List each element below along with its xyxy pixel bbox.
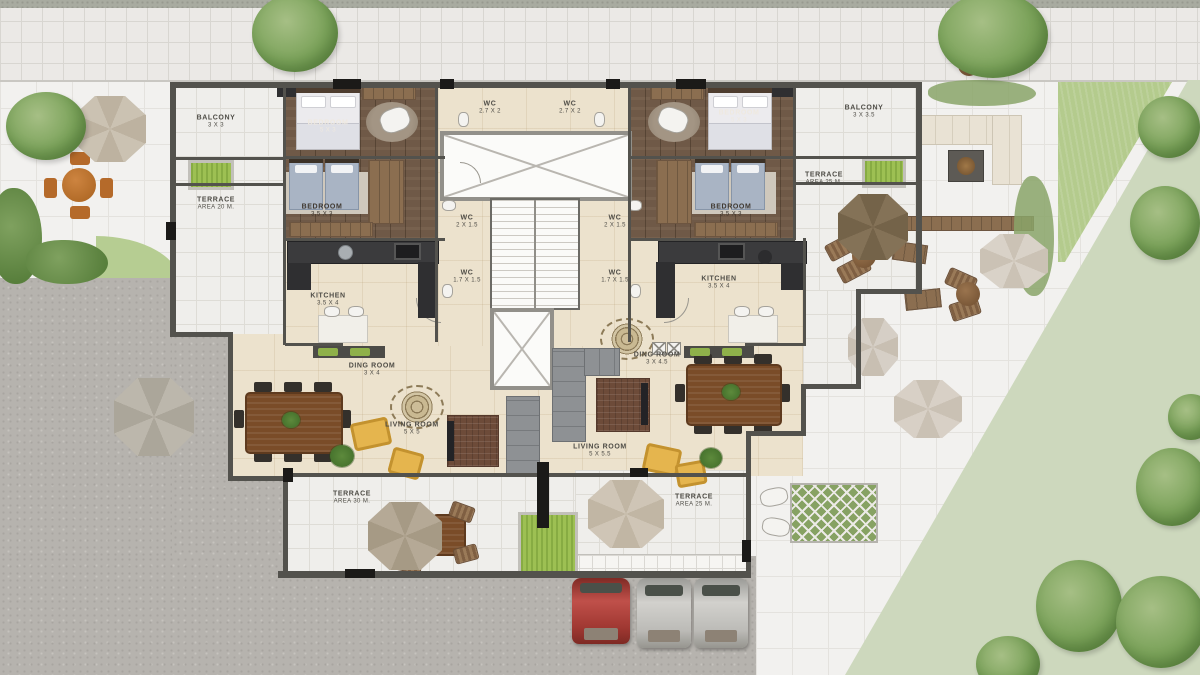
room-name: KITCHEN: [310, 292, 345, 301]
room-name: WC: [559, 100, 581, 109]
umbrella: [894, 380, 962, 438]
chair: [348, 306, 364, 317]
room-size: 3 X 4.5: [634, 360, 681, 367]
building-wall: [801, 384, 806, 436]
dresser: [289, 222, 373, 237]
accent-wall: [537, 462, 549, 528]
outdoor-sofa-corner: [992, 115, 1022, 185]
tree: [1116, 576, 1200, 668]
potted-plant: [700, 448, 722, 468]
room-label-wc-top-left: WC2.7 X 2: [479, 100, 501, 117]
building-wall: [283, 476, 288, 576]
wardrobe: [656, 160, 692, 224]
sofa-corner-section: [584, 348, 620, 376]
room-name: BEDROOM: [308, 119, 349, 128]
partition-wall: [793, 84, 796, 240]
chair: [734, 306, 750, 317]
partition-wall: [285, 343, 343, 346]
chair: [44, 178, 57, 198]
room-name: TERRACE: [333, 490, 371, 499]
partition-wall: [285, 156, 445, 159]
room-label-kitchen-right: KITCHEN3.5 X 4: [701, 275, 736, 292]
room-name: WC: [601, 269, 629, 278]
room-label-balcony-right: BALCONY3 X 3.5: [845, 104, 884, 121]
lounge-chair: [761, 516, 792, 539]
building-wall: [170, 82, 176, 337]
wardrobe: [368, 160, 404, 224]
sink-icon: [442, 200, 456, 211]
sofa-right-apartment: [552, 348, 586, 442]
car-silver: [637, 578, 691, 648]
room-size: AREA 30 M.: [333, 499, 371, 506]
chair: [100, 178, 113, 198]
room-name: TERRACE: [675, 493, 713, 502]
stove-icon: [394, 243, 421, 260]
room-name: BALCONY: [197, 114, 236, 123]
building-wall: [228, 476, 288, 481]
tv-console: [447, 421, 454, 461]
stove-icon: [718, 243, 745, 260]
room-label-bedroom-right-master: BEDROOM5 X 3: [719, 109, 760, 126]
car-silver: [694, 578, 748, 648]
building-wall: [801, 384, 861, 389]
room-size: 1.7 X 1.5: [601, 278, 629, 285]
room-name: TERRACE: [805, 171, 843, 180]
toilet-icon: [630, 284, 641, 298]
kitchen-table: [728, 315, 778, 343]
partition-wall: [630, 156, 795, 159]
room-size: 2.7 X 2: [479, 109, 501, 116]
wall-pier: [333, 79, 361, 89]
fridge: [781, 263, 805, 290]
room-size: 5 X 5.5: [573, 452, 627, 459]
dresser: [694, 222, 778, 237]
room-size: 5 X 5: [385, 430, 439, 437]
room-size: AREA 25 M.: [805, 180, 843, 187]
rail-plant: [722, 348, 742, 356]
wall-pier: [676, 79, 706, 89]
dining-chair: [234, 410, 244, 428]
partition-wall: [283, 84, 286, 345]
kitchen-table: [318, 315, 368, 343]
tree: [6, 92, 86, 160]
pot-icon: [758, 250, 772, 264]
partition-wall: [795, 156, 920, 159]
rail-plant: [350, 348, 370, 356]
room-name: LIVING ROOM: [573, 443, 627, 452]
toilet-icon: [458, 112, 469, 127]
wood-deck-strip: [890, 216, 1034, 231]
room-size: 2.7 X 2: [559, 109, 581, 116]
chair: [70, 206, 90, 219]
room-name: LIVING ROOM: [385, 421, 439, 430]
elevator-x-icon: [494, 312, 550, 386]
umbrella: [368, 502, 442, 570]
rail-plant: [318, 348, 338, 356]
room-label-dining-right: DING ROOM3 X 4.5: [634, 351, 681, 368]
building-wall: [746, 431, 806, 436]
wall-pier: [742, 540, 751, 562]
room-name: BEDROOM: [711, 203, 752, 212]
room-label-dining-left: DING ROOM3 X 4: [349, 362, 396, 379]
room-size: 3.5 X 4: [310, 301, 345, 308]
floor-plan-canvas: BALCONY3 X 3 TERRACEAREA 20 M. BEDROOM5 …: [0, 0, 1200, 675]
room-name: WC: [479, 100, 501, 109]
room-size: 2 X 1.5: [456, 223, 478, 230]
lounge-chair: [758, 485, 789, 508]
room-label-wc-low-left: WC1.7 X 1.5: [453, 269, 481, 286]
room-label-wc-top-right: WC2.7 X 2: [559, 100, 581, 117]
tree: [1138, 96, 1200, 158]
room-name: BEDROOM: [302, 203, 343, 212]
umbrella: [588, 480, 664, 548]
room-label-kitchen-left: KITCHEN3.5 X 4: [310, 292, 345, 309]
partition-wall: [630, 238, 795, 241]
stair-divider: [534, 200, 536, 308]
room-name: WC: [453, 269, 481, 278]
room-size: 5 X 3: [308, 128, 349, 135]
partition-wall: [745, 343, 803, 346]
dining-chair: [754, 354, 772, 364]
room-name: WC: [456, 214, 478, 223]
partition-wall: [628, 84, 631, 342]
tv-rug: [447, 415, 499, 467]
building-wall: [856, 289, 922, 294]
room-name: DING ROOM: [349, 362, 396, 371]
wall-pier: [606, 79, 620, 89]
dining-chair: [314, 382, 332, 392]
toilet-icon: [594, 112, 605, 127]
room-label-bedroom-left-kids: BEDROOM3.5 X 3: [302, 203, 343, 220]
room-label-living-right: LIVING ROOM5 X 5.5: [573, 443, 627, 460]
room-size: 5 X 3: [719, 118, 760, 125]
dining-chair: [675, 384, 685, 402]
wall-pier: [283, 468, 293, 482]
building-wall: [916, 82, 922, 294]
room-label-bedroom-right-kids: BEDROOM3.5 X 3: [711, 203, 752, 220]
partition-wall: [285, 473, 748, 477]
room-label-balcony-left: BALCONY3 X 3: [197, 114, 236, 131]
room-size: 3.5 X 3: [711, 212, 752, 219]
round-table-orange: [62, 168, 96, 202]
room-size: 3.5 X 3: [302, 212, 343, 219]
room-label-wc-low-right: WC1.7 X 1.5: [601, 269, 629, 286]
wall-pier: [345, 569, 375, 578]
partition-wall: [803, 238, 806, 346]
tree: [1136, 448, 1200, 526]
table-centerpiece: [722, 384, 740, 400]
room-size: 1.7 X 1.5: [453, 278, 481, 285]
table-centerpiece: [282, 412, 300, 428]
room-size: AREA 25 M.: [675, 502, 713, 509]
room-name: WC: [604, 214, 626, 223]
staircase: [490, 198, 580, 310]
room-size: 3.5 X 4: [701, 284, 736, 291]
chair: [758, 306, 774, 317]
sink-icon: [338, 245, 353, 260]
gravel-notch-2: [172, 478, 285, 558]
room-size: 3 X 3.5: [845, 113, 884, 120]
rail-plant: [690, 348, 710, 356]
tv-console: [641, 383, 648, 425]
wall-pier: [440, 79, 454, 89]
dining-chair: [284, 382, 302, 392]
partition-wall: [285, 238, 445, 241]
round-table: [956, 282, 980, 306]
room-label-wc-mid-right: WC2 X 1.5: [604, 214, 626, 231]
potted-plant: [330, 445, 354, 467]
room-label-terrace-right: TERRACEAREA 25 M.: [805, 171, 843, 188]
firepit-table: [948, 150, 984, 182]
partition-wall: [172, 157, 285, 160]
fridge: [287, 263, 311, 290]
building-wall: [170, 332, 232, 337]
car-red: [572, 578, 630, 644]
room-name: KITCHEN: [701, 275, 736, 284]
bush: [26, 240, 108, 284]
room-name: TERRACE: [197, 196, 235, 205]
room-name: BEDROOM: [719, 109, 760, 118]
dining-chair: [254, 382, 272, 392]
tall-kitchen-unit: [656, 262, 675, 318]
building-wall: [856, 289, 861, 389]
tree: [1130, 186, 1200, 260]
room-size: AREA 20 M.: [197, 205, 235, 212]
toilet-icon: [442, 284, 453, 298]
umbrella: [980, 234, 1048, 288]
room-label-terrace-bottom-right: TERRACEAREA 25 M.: [675, 493, 713, 510]
tree: [1036, 560, 1122, 652]
room-size: 2 X 1.5: [604, 223, 626, 230]
vine-hedge: [928, 80, 1036, 106]
umbrella-brown: [838, 194, 908, 260]
room-size: 3 X 3: [197, 123, 236, 130]
wall-pier: [166, 222, 176, 240]
umbrella: [114, 378, 194, 456]
partition-wall: [172, 183, 285, 186]
room-label-terrace-bottom-left: TERRACEAREA 30 M.: [333, 490, 371, 507]
partition-wall: [435, 84, 438, 342]
sofa-left-apartment: [506, 396, 540, 476]
room-name: BALCONY: [845, 104, 884, 113]
room-name: DING ROOM: [634, 351, 681, 360]
building-wall: [228, 332, 233, 480]
room-label-living-left: LIVING ROOM5 X 5: [385, 421, 439, 438]
room-label-wc-mid-left: WC2 X 1.5: [456, 214, 478, 231]
room-size: 3 X 4: [349, 371, 396, 378]
room-label-bedroom-left-master: BEDROOM5 X 3: [308, 119, 349, 136]
pergola-lattice: [790, 483, 878, 543]
wall-pier: [630, 468, 648, 477]
room-label-terrace-left: TERRACEAREA 20 M.: [197, 196, 235, 213]
elevator-shaft-lower: [490, 308, 554, 390]
